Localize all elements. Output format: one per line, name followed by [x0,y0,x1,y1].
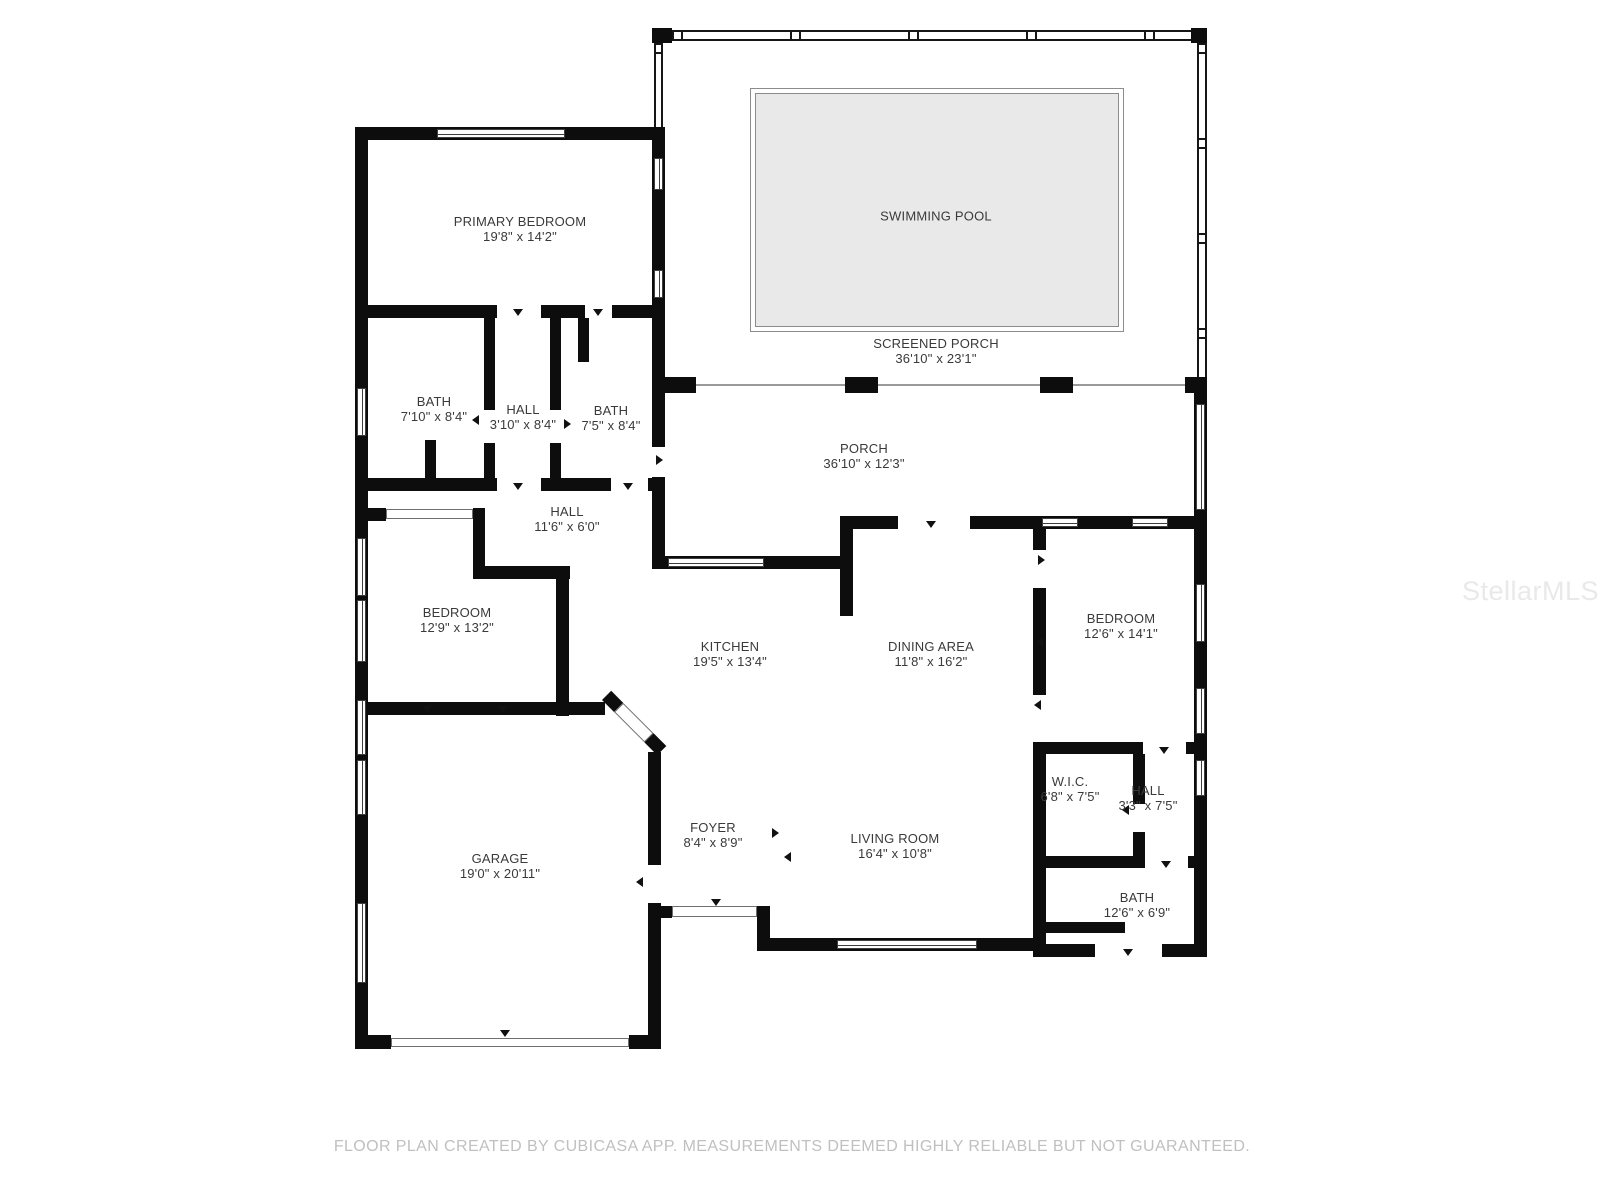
room-label-screened-porch: SCREENED PORCH 36'10" x 23'1" [873,336,999,366]
room-label-bath-mid: BATH 7'5" x 8'4" [581,403,640,433]
room-name: HALL [1118,783,1177,798]
wall [648,903,661,1049]
room-label-kitchen: KITCHEN 19'5" x 13'4" [693,639,767,669]
door-swing-arrow [472,415,479,425]
wall [355,1035,391,1049]
room-dims: 7'5" x 8'4" [581,418,640,433]
room-dims: 12'6" x 6'9" [1104,905,1170,920]
window [1196,404,1205,510]
door-swing-arrow [500,1030,510,1037]
closet-doors [386,509,473,519]
wall [1033,922,1125,933]
wall [541,478,611,491]
room-label-hall-main: HALL 11'6" x 6'0" [534,504,600,534]
room-label-bedroom-right: BEDROOM 12'6" x 14'1" [1084,611,1158,641]
wall [578,318,589,362]
room-dims: 19'0" x 20'11" [460,866,540,881]
door-swing-arrow [926,521,936,528]
door-swing-arrow [1034,700,1041,710]
room-name: SCREENED PORCH [873,336,999,351]
door-swing-arrow [623,483,633,490]
wall [355,508,386,521]
room-label-garage: GARAGE 19'0" x 20'11" [460,851,540,881]
garage-door [391,1038,629,1047]
room-name: PRIMARY BEDROOM [454,214,587,229]
screen-wall [654,43,663,127]
wall [556,566,569,716]
room-name: BATH [401,394,467,409]
wall [550,443,561,483]
room-label-dining: DINING AREA 11'8" x 16'2" [888,639,974,669]
porch-pillar [652,377,696,393]
porch-pillar [1185,377,1207,393]
door-swing-arrow [498,706,508,713]
room-name: KITCHEN [693,639,767,654]
wall [840,516,853,616]
wall [484,318,495,410]
wall [541,305,585,318]
wall [648,478,665,491]
stellar-mls-watermark: StellarMLS [1462,576,1599,607]
window [668,558,764,567]
window [357,538,366,596]
room-dims: 3'3" x 7'5" [1118,798,1177,813]
wall [612,305,665,318]
window [1196,584,1205,642]
door-swing-arrow [593,309,603,316]
window [1132,518,1168,527]
room-name: HALL [490,402,556,417]
porch-pillar [845,377,878,393]
door-swing-arrow [1038,555,1045,565]
floor-plan: SWIMMING POOL PRIMARY BEDROOM 19'8" x 14… [0,0,1600,1200]
room-label-hall-right: HALL 3'3" x 7'5" [1118,783,1177,813]
room-dims: 6'8" x 7'5" [1040,789,1099,804]
door-swing-arrow [513,483,523,490]
wall [970,516,1206,529]
room-dims: 19'5" x 13'4" [693,654,767,669]
door-swing-arrow [1159,747,1169,754]
room-name: FOYER [683,820,742,835]
room-name: BATH [1104,890,1170,905]
wall-diagonal [602,691,666,755]
room-name: SWIMMING POOL [880,209,992,224]
room-label-bath-left: BATH 7'10" x 8'4" [401,394,467,424]
wall [355,702,605,715]
room-dims: 36'10" x 12'3" [823,456,904,471]
room-dims: 3'10" x 8'4" [490,417,556,432]
room-dims: 19'8" x 14'2" [454,229,587,244]
door-swing-arrow [564,419,571,429]
wall [1033,742,1143,754]
room-name: HALL [534,504,600,519]
window [357,600,366,662]
door-swing-arrow [1036,637,1043,647]
room-dims: 8'4" x 8'9" [683,835,742,850]
entry-door [614,703,654,743]
door-swing-arrow [656,455,663,465]
room-name: GARAGE [460,851,540,866]
wall [425,440,436,491]
room-label-bath-right: BATH 12'6" x 6'9" [1104,890,1170,920]
front-door [672,906,757,917]
door-swing-arrow [1123,949,1133,956]
room-dims: 7'10" x 8'4" [401,409,467,424]
wall [652,385,665,447]
room-dims: 36'10" x 23'1" [873,351,999,366]
window [357,388,366,436]
wall [355,305,497,318]
wall [550,318,561,410]
screen-post [652,28,672,43]
room-name: BEDROOM [420,605,494,620]
window [1042,518,1078,527]
room-label-swimming-pool: SWIMMING POOL [880,209,992,224]
room-dims: 11'8" x 16'2" [888,654,974,669]
window [1196,760,1205,796]
footer-disclaimer: FLOOR PLAN CREATED BY CUBICASA APP. MEAS… [0,1138,1584,1156]
wall [629,1035,661,1049]
room-dims: 12'6" x 14'1" [1084,626,1158,641]
room-name: LIVING ROOM [851,831,940,846]
window [654,270,663,298]
room-label-porch: PORCH 36'10" x 12'3" [823,441,904,471]
wall [1162,944,1206,957]
wall [1186,742,1206,754]
window [654,158,663,190]
screen-wall [672,30,1191,41]
room-name: PORCH [823,441,904,456]
room-label-bedroom-left: BEDROOM 12'9" x 13'2" [420,605,494,635]
window [357,760,366,815]
room-label-living: LIVING ROOM 16'4" x 10'8" [851,831,940,861]
door-swing-arrow [513,309,523,316]
room-name: DINING AREA [888,639,974,654]
wall [648,906,672,918]
window [1196,688,1205,734]
wall [1033,944,1095,957]
room-name: BEDROOM [1084,611,1158,626]
door-swing-arrow [784,852,791,862]
window [437,129,565,138]
door-swing-arrow [1161,861,1171,868]
door-swing-arrow [772,828,779,838]
room-name: W.I.C. [1040,774,1099,789]
porch-pillar [1040,377,1073,393]
room-dims: 11'6" x 6'0" [534,519,600,534]
door-swing-arrow [422,706,432,713]
window [357,903,366,983]
room-label-primary-bedroom: PRIMARY BEDROOM 19'8" x 14'2" [454,214,587,244]
room-label-foyer: FOYER 8'4" x 8'9" [683,820,742,850]
window [837,940,977,949]
wall [840,516,898,529]
room-label-hall-small: HALL 3'10" x 8'4" [490,402,556,432]
wall [1033,856,1145,868]
room-name: BATH [581,403,640,418]
divider-line [665,384,1198,386]
room-dims: 16'4" x 10'8" [851,846,940,861]
door-swing-arrow [711,899,721,906]
wall [648,752,661,865]
room-label-wic: W.I.C. 6'8" x 7'5" [1040,774,1099,804]
screen-post [1191,28,1207,43]
room-dims: 12'9" x 13'2" [420,620,494,635]
screen-wall [1197,43,1207,383]
wall [1188,856,1206,868]
window [357,700,366,755]
door-swing-arrow [636,877,643,887]
wall [484,443,495,483]
